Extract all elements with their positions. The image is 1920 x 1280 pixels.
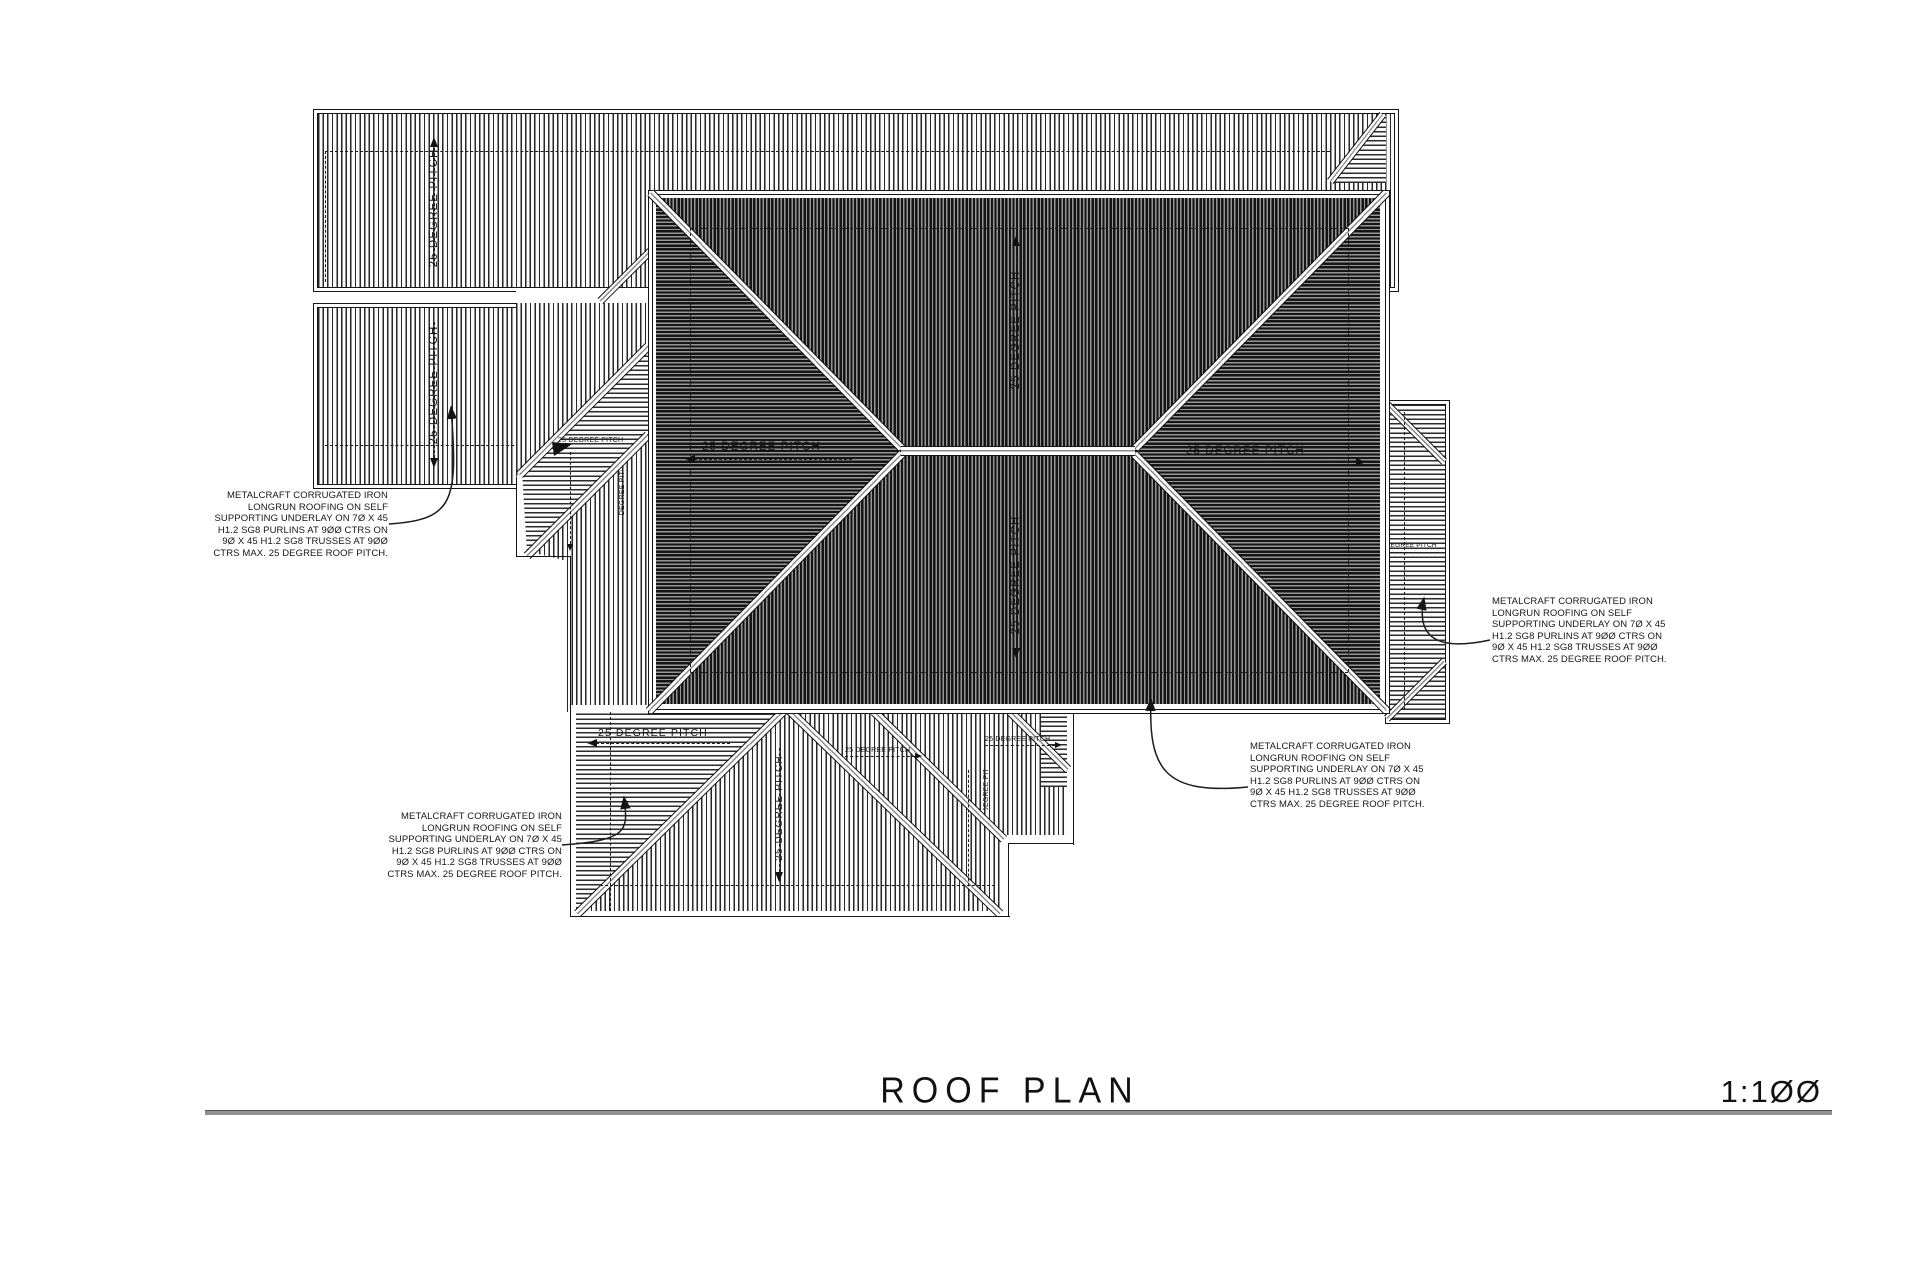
pitch-label-wing-corner: 25 DEGREE PITCH (985, 736, 1057, 743)
pitch-line-wing-corner (985, 745, 1055, 746)
roof-plan-sheet: 25 DEGREE PITCH 25 DEGREE PITCH 25 DEGRE… (0, 0, 1920, 1280)
wing-south-outline-bottom (570, 916, 1010, 917)
main-dashed-bottom (690, 672, 1348, 673)
pitch-label-main-west: 25 DEGREE PITCH (702, 441, 852, 453)
pitch-label-wing-valley-rot: 25 DEGREE PITCH (982, 770, 990, 810)
pitch-line-main-west (694, 459, 852, 460)
note-southwest: METALCRAFT CORRUGATED IRON LONGRUN ROOFI… (330, 811, 562, 881)
drawing-scale: 1:1ØØ (1688, 1074, 1822, 1110)
note-center: METALCRAFT CORRUGATED IRON LONGRUN ROOFI… (1250, 741, 1462, 811)
pitch-line-wing-center (779, 748, 780, 872)
pitch-arrow-main-north (1012, 236, 1020, 246)
pitch-arrow-wing-corner (1055, 742, 1062, 748)
wing-south-dashed-right (968, 770, 969, 911)
outline-step-left (516, 477, 517, 557)
wing-south-outline-left (570, 705, 571, 917)
pitch-arrow-wing-strip (915, 753, 922, 759)
pitch-label-wing-strip: 25 DEGREE PITCH (845, 747, 917, 754)
pitch-arrow-main-east (1356, 458, 1366, 466)
wing-south-dashed-eave (600, 885, 995, 886)
roof-wing-east (1385, 400, 1450, 724)
pitch-label-main-north: 25 DEGREE PITCH (1010, 270, 1022, 390)
pitch-label-connector-rot: 25 DEGREE PITCH (618, 470, 626, 516)
pitch-label-wing-west: 25 DEGREE PITCH (598, 727, 730, 739)
pitch-arrow-wing-west (587, 739, 597, 747)
page-title: ROOF PLAN (860, 1071, 1160, 1113)
pitch-arrow-connector (567, 544, 573, 551)
pitch-arrow-main-west (685, 455, 695, 463)
pitch-line-connector (570, 452, 571, 544)
pitch-label-north: 25 DEGREE PITCH (428, 148, 440, 268)
main-dashed-left (690, 228, 691, 672)
pitch-line-wing-west (596, 743, 730, 744)
outline-step-bottom (516, 556, 571, 557)
eave-dashed-north (325, 151, 1330, 152)
wing-east-dashed (1404, 412, 1405, 710)
pitch-label-south: 25 DEGREE PITCH (428, 325, 440, 445)
wing-south-outline-right-upper (1073, 705, 1074, 845)
pitch-label-main-east: 25 DEGREE PITCH (1186, 445, 1336, 457)
pitch-line-main-east (1190, 462, 1356, 463)
wing-south-dashed-left (610, 712, 611, 911)
wing-south-outline-step (1008, 843, 1074, 844)
outline-step-down (570, 556, 571, 706)
pitch-arrow-wing-center (775, 872, 783, 882)
eave-dashed-north-left (325, 151, 326, 282)
main-ridge (901, 446, 1135, 456)
note-east: METALCRAFT CORRUGATED IRON LONGRUN ROOFI… (1492, 596, 1704, 666)
main-dashed-right (1348, 228, 1349, 672)
main-dashed-top (690, 228, 1348, 229)
pitch-arrow-north (430, 137, 438, 147)
note-west: METALCRAFT CORRUGATED IRON LONGRUN ROOFI… (150, 490, 388, 560)
wing-south-outline-right-lower (1008, 843, 1009, 917)
pitch-label-main-south: 25 DEGREE PITCH (1010, 515, 1022, 635)
pitch-arrow-main-south (1012, 648, 1020, 658)
pitch-line-wing-strip (845, 756, 915, 757)
pitch-arrow-south (430, 458, 438, 468)
pitch-label-connector: 25 DEGREE PITCH (558, 437, 630, 444)
title-underline (205, 1110, 1832, 1115)
